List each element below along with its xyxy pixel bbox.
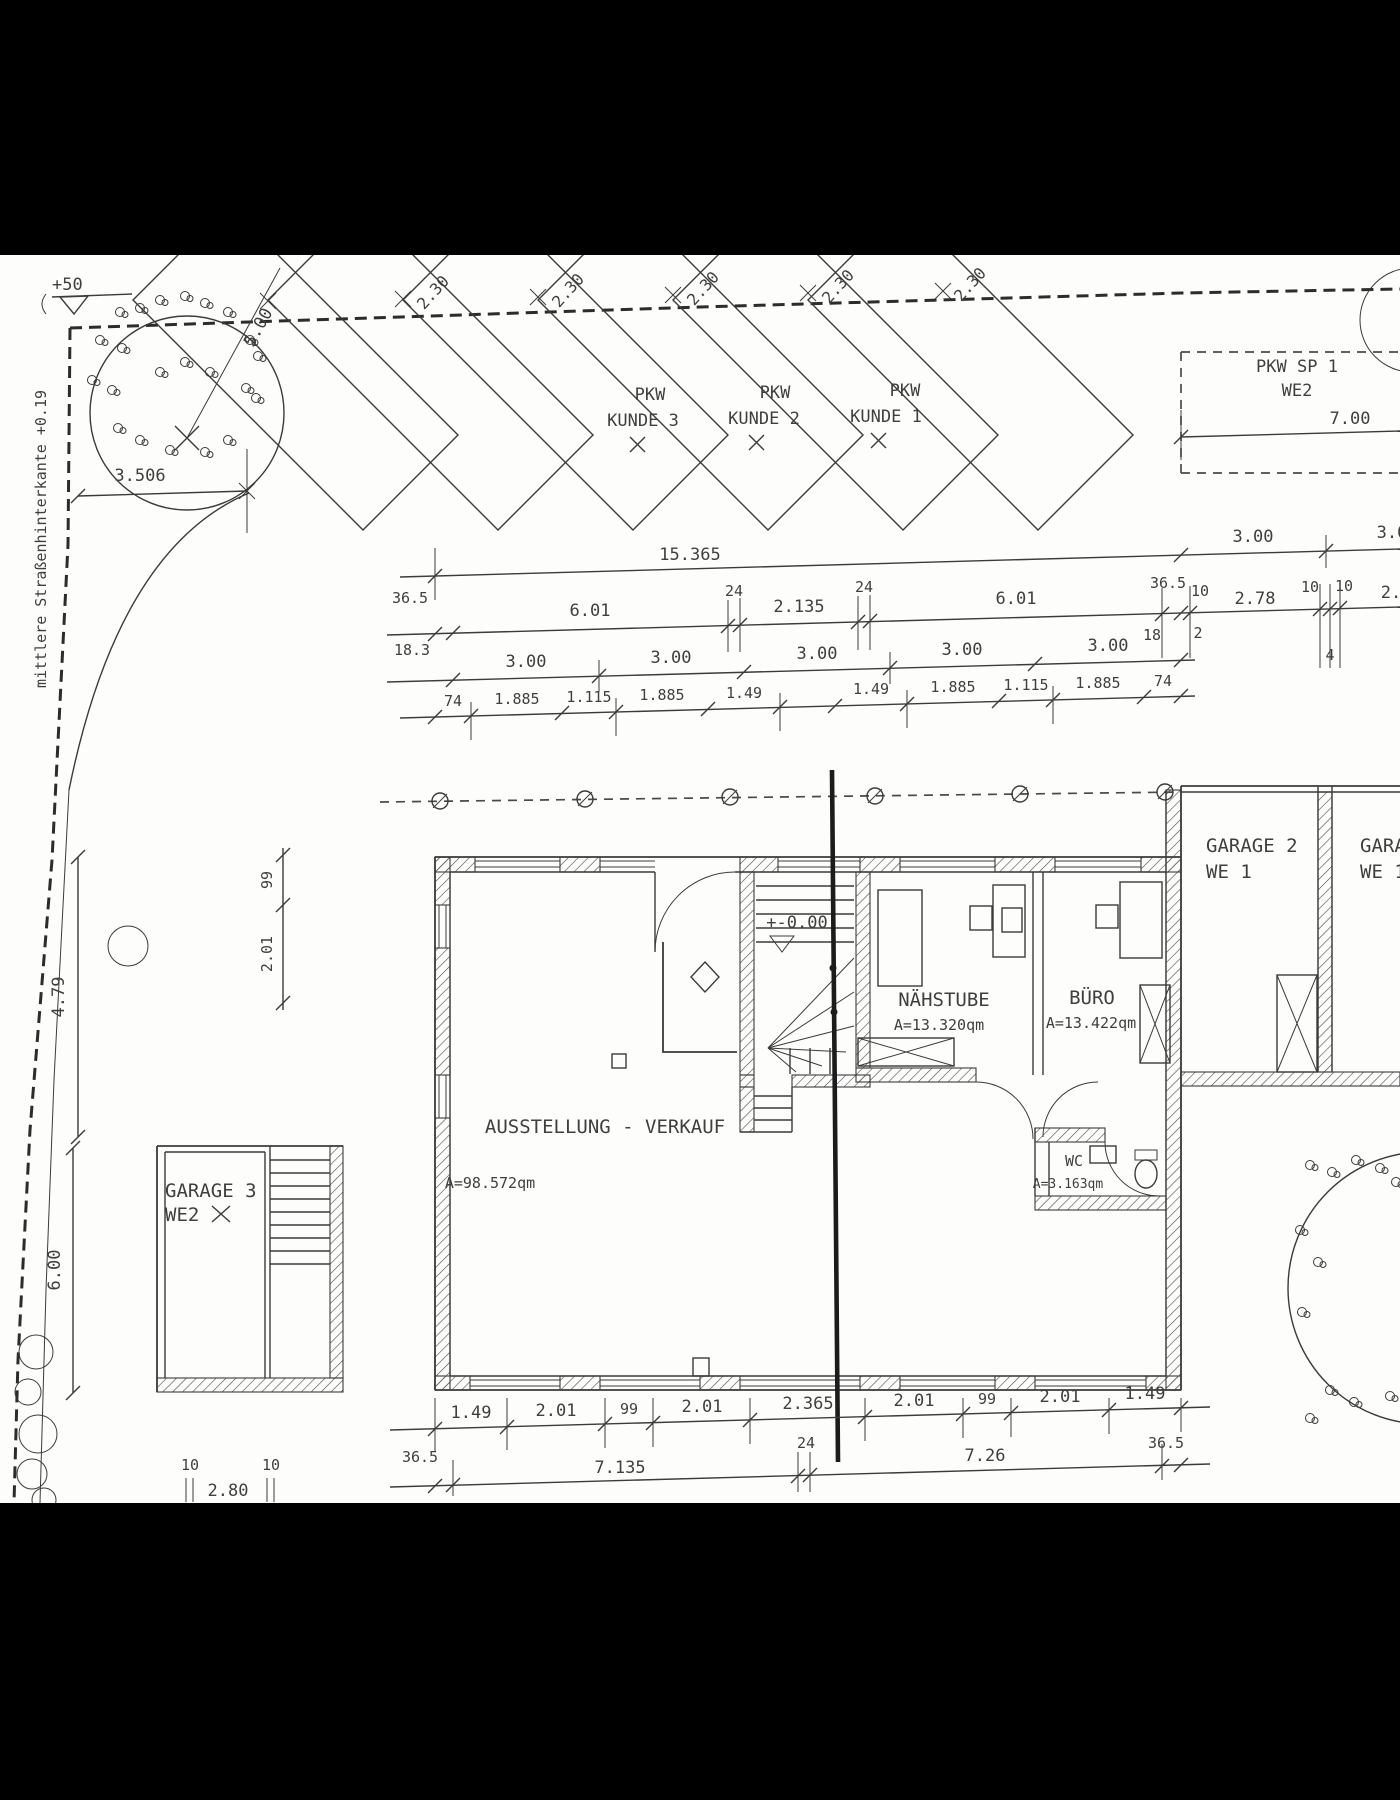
stall-type: PKW [635,385,666,405]
dim-label: 10 [1191,582,1209,600]
dim-label: 2.135 [773,597,824,617]
street-note: mittlere Straßenhinterkante +0.19 [32,390,50,688]
dim-label: 1.49 [451,1403,492,1423]
stall-name: KUNDE 2 [728,409,800,429]
tree-offset-dim: 3.506 [114,466,165,486]
dim-label: 1.115 [1003,676,1048,694]
garage-label: GARAGE 3 [165,1180,257,1202]
dim-label: 1.115 [566,688,611,706]
dim-label: 24 [725,582,743,600]
garage-label: GARAGE 2 [1206,835,1298,857]
scan-bar-bottom [0,1503,1400,1800]
dim-label: 6.00 [45,1250,65,1291]
dim-label: 2.01 [536,1401,577,1421]
floor-plan-drawing: +50 mittlere Straßenhinterkante +0.19 5.… [0,0,1400,1800]
dim-label: 74 [444,692,462,710]
dim-label: 2.01 [1040,1387,1081,1407]
carport-name: PKW SP 1 [1256,357,1338,377]
dim-label: 10 [181,1456,199,1474]
dim-label: 2.365 [782,1394,833,1414]
dim-label: 7.26 [965,1446,1006,1466]
dim-label: 7.135 [594,1458,645,1478]
dim-label: 3.00 [1088,636,1129,656]
scan-bar-top [0,0,1400,255]
dim-label: 2.01 [894,1391,935,1411]
dim-label: 2.78 [1235,589,1276,609]
dim-label: 24 [797,1434,815,1452]
dim-label: 4 [1325,646,1334,664]
dim-label: 36.5 [1148,1434,1184,1452]
dim-label: 1.49 [1125,1384,1166,1404]
stall-name: KUNDE 1 [850,407,922,427]
dim-label: 10 [1335,577,1353,595]
room-label: WC [1065,1152,1083,1170]
benchmark-label: +50 [52,275,83,295]
dim-label: 3.00 [942,640,983,660]
dim-label: 99 [620,1400,638,1418]
room-label: AUSSTELLUNG - VERKAUF [485,1116,725,1138]
stall-type: PKW [760,383,791,403]
paper-background [0,250,1400,1508]
room-label: BÜRO [1069,986,1115,1009]
dim-label: 1.885 [494,690,539,708]
dim-label: 36.5 [1150,574,1186,592]
carport-unit: WE2 [1282,381,1313,401]
dim-label: 3.00 [797,644,838,664]
carport-width-dim: 7.00 [1330,409,1371,429]
dim-label: 2.01 [682,1397,723,1417]
scanned-site-plan: +50 mittlere Straßenhinterkante +0.19 5.… [0,0,1400,1800]
garage-unit: WE 1 [1206,861,1252,883]
dim-label: 1.49 [726,684,762,702]
dim-label: 3.0 [1377,523,1400,543]
dim-label: 99 [978,1390,996,1408]
garage-unit: WE 1 [1360,861,1400,883]
level-label: +-0.00 [766,913,827,933]
dim-label: 3.00 [1233,527,1274,547]
stall-type: PKW [890,381,921,401]
garage-label: GARA [1360,835,1400,857]
dim-label: 24 [855,578,873,596]
dim-label: 1.885 [639,686,684,704]
dim-label: 2.01 [258,936,276,972]
dim-label: 99 [258,871,276,889]
room-area: A=13.422qm [1046,1014,1136,1032]
dim-label: 4.79 [49,977,69,1018]
dim-label: 6.01 [570,601,611,621]
room-area: A=3.163qm [1033,1177,1104,1192]
dim-label: 2. [1381,583,1400,603]
dim-label: 36.5 [402,1448,438,1466]
garage-unit: WE2 [165,1204,199,1226]
dim-label: 36.5 [392,589,428,607]
room-area: A=13.320qm [894,1016,984,1034]
dim-label: 3.00 [651,648,692,668]
dim-label: 3.00 [506,652,547,672]
dim-label: 18 [1143,626,1161,644]
dim-label: 18.3 [394,641,430,659]
dim-label: 10 [262,1456,280,1474]
room-label: NÄHSTUBE [898,988,990,1011]
dim-label: 15.365 [659,545,720,565]
dim-label: 2.80 [208,1481,249,1501]
dim-label: 1.49 [853,680,889,698]
dim-label: 2 [1193,624,1202,642]
stall-name: KUNDE 3 [607,411,679,431]
dim-label: 1.885 [930,678,975,696]
dim-label: 1.885 [1075,674,1120,692]
dim-label: 6.01 [996,589,1037,609]
room-area: A=98.572qm [445,1174,535,1192]
dim-label: 10 [1301,578,1319,596]
dim-label: 74 [1154,672,1172,690]
